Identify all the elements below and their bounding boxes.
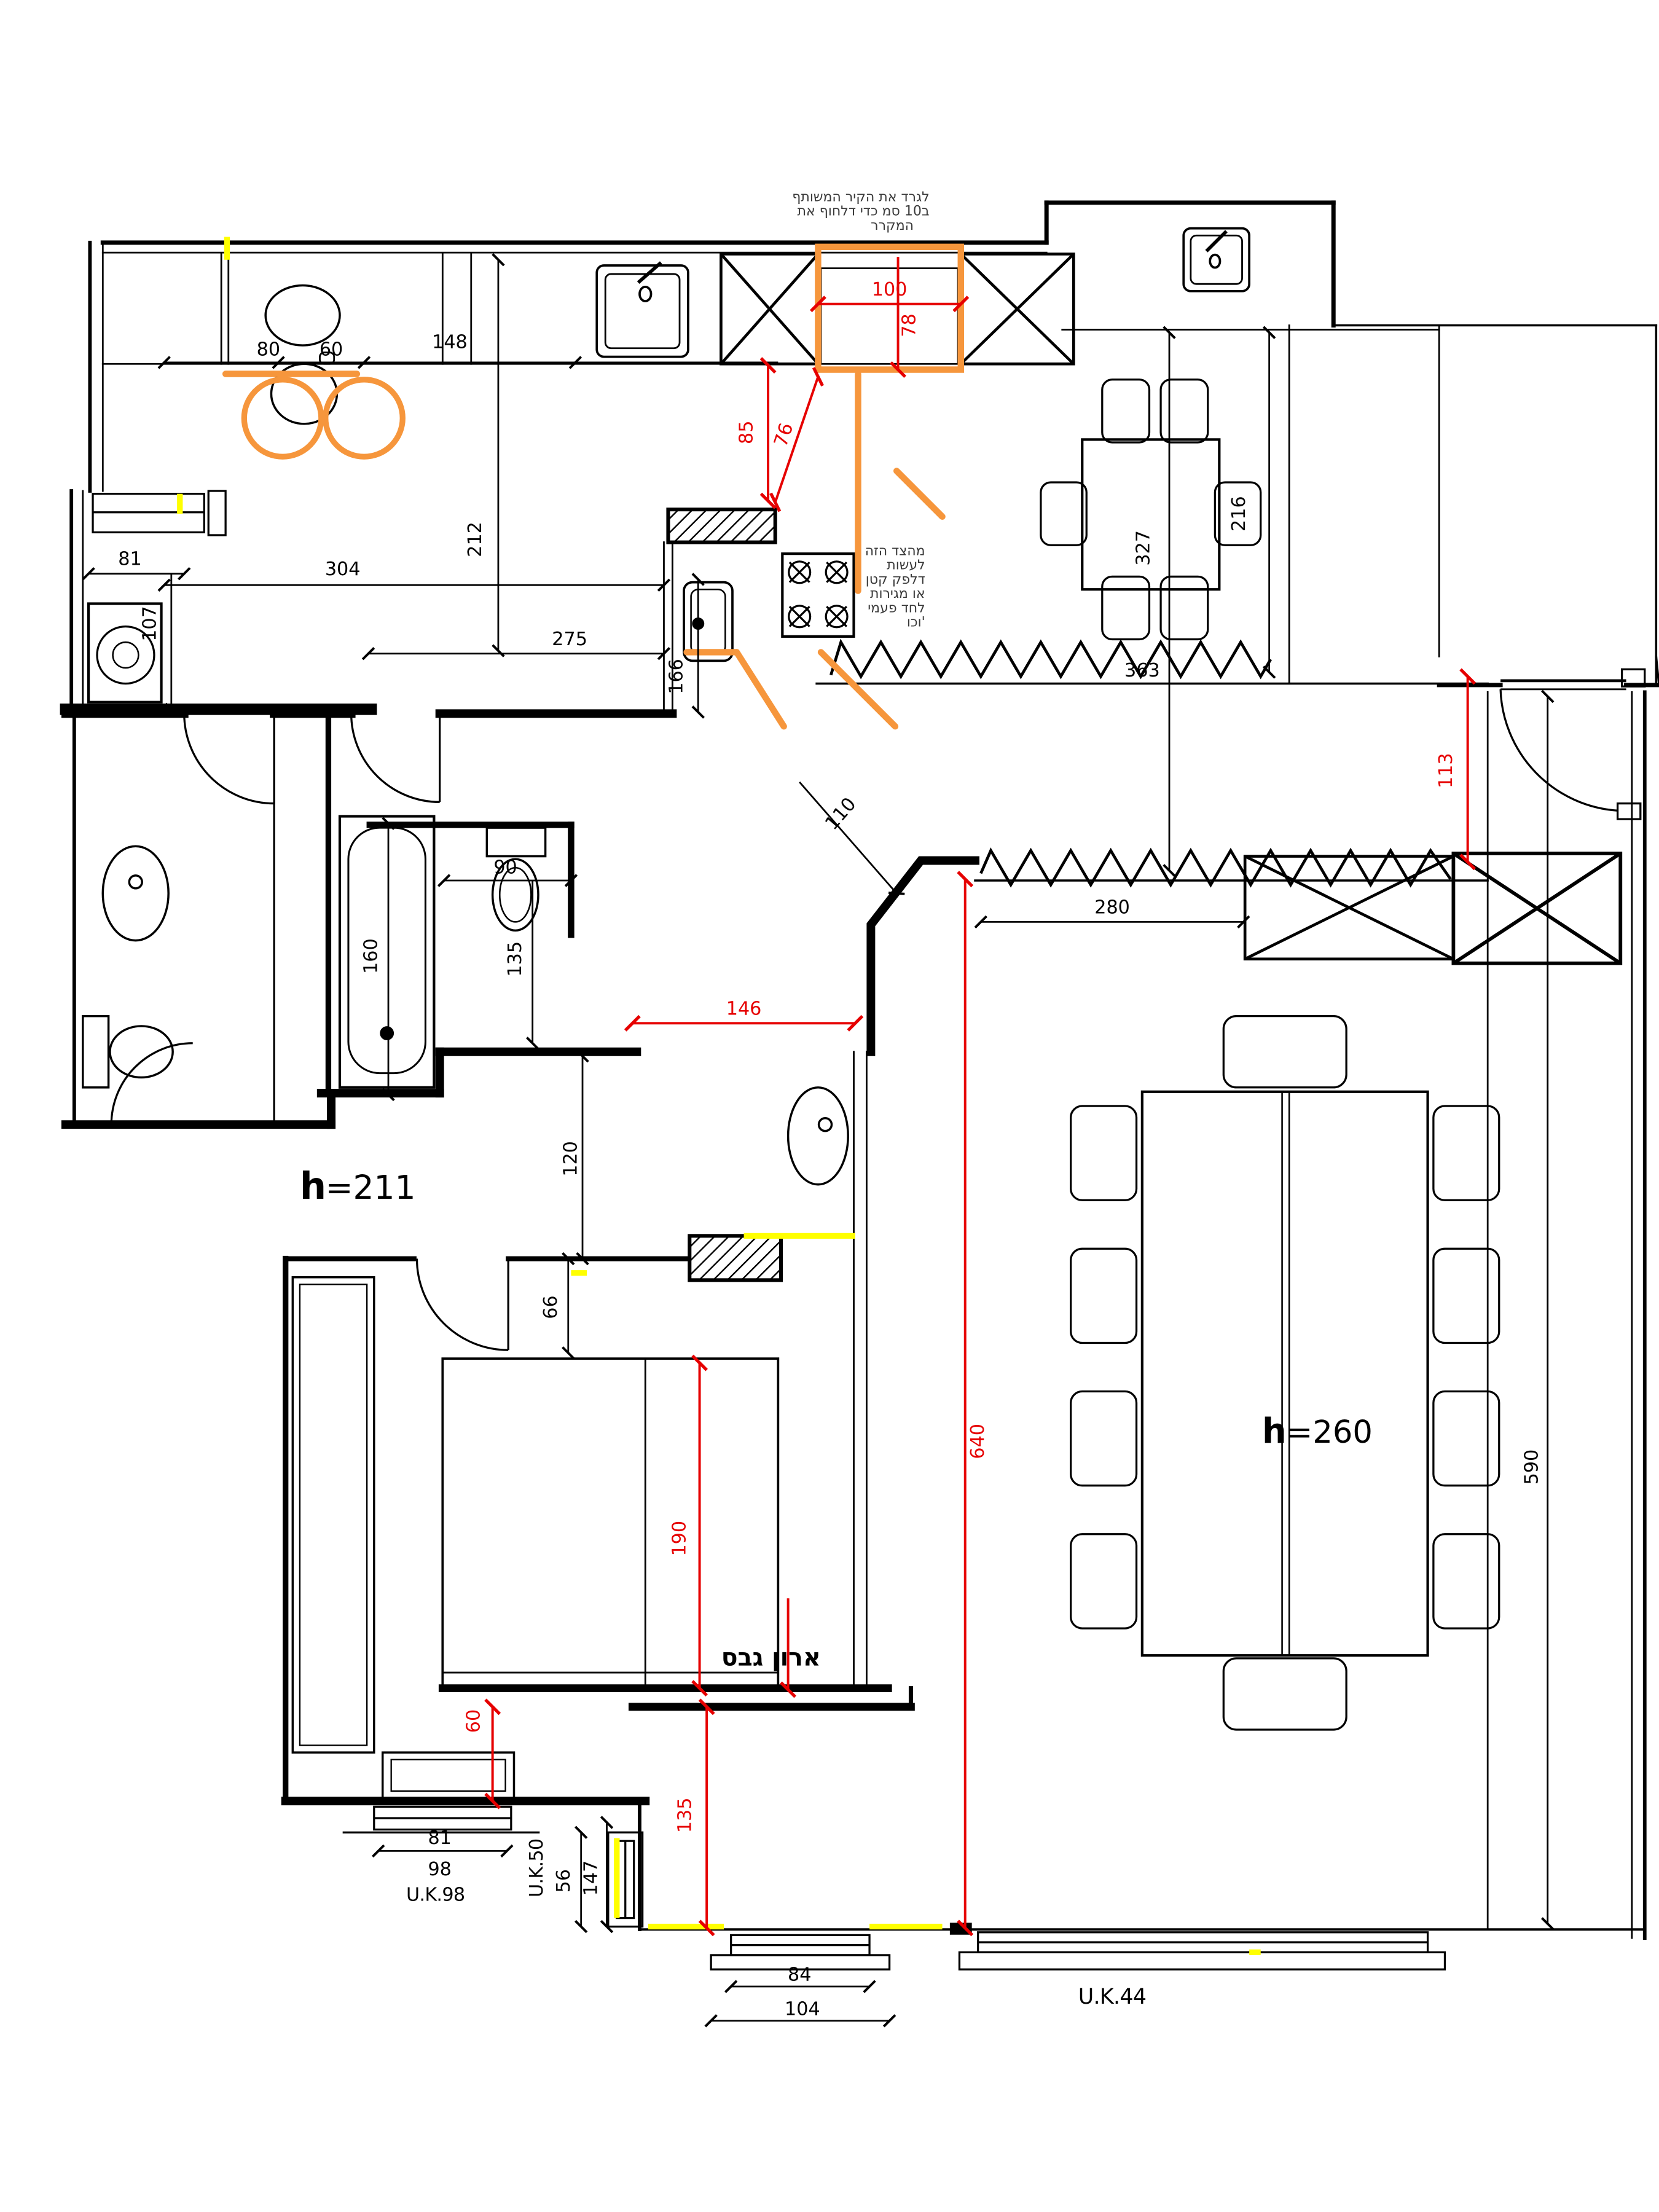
dim-bed-190: 190 bbox=[669, 1521, 690, 1556]
dim-entry-113: 113 bbox=[1435, 753, 1457, 788]
dim-dining-216: 216 bbox=[1228, 496, 1250, 531]
dim-island-166: 166 bbox=[666, 659, 688, 694]
sink-bath-left bbox=[103, 846, 168, 940]
dim-living-280: 280 bbox=[1094, 896, 1130, 918]
counter-note-line1: מהצד הזה bbox=[865, 543, 925, 559]
living-height-h: h bbox=[1262, 1411, 1287, 1451]
counter-note-line6: וכו' bbox=[907, 615, 925, 630]
fridge-note-line2: ב10 סמ כדי דלחוף את bbox=[798, 204, 930, 219]
dim-corridor-120: 120 bbox=[560, 1141, 582, 1177]
dim-kitchen-212: 212 bbox=[465, 522, 486, 557]
orange-circle-1 bbox=[244, 380, 321, 457]
dim-laundry-81: 81 bbox=[118, 549, 141, 570]
stove bbox=[782, 554, 853, 637]
dim-laundry-107: 107 bbox=[139, 606, 160, 641]
dim-win-104: 104 bbox=[785, 1998, 820, 2020]
dimensions-black bbox=[88, 260, 1548, 2021]
living-height-value: =260 bbox=[1287, 1414, 1373, 1451]
dim-counter-60: 60 bbox=[320, 339, 343, 360]
counter-note-line5: לחד פעמי bbox=[868, 600, 925, 616]
label-uk50: U.K.50 bbox=[526, 1839, 547, 1897]
counter-note-line2: לעשות bbox=[887, 558, 925, 573]
bathtub bbox=[340, 817, 434, 1088]
dim-kitchen-275: 275 bbox=[552, 629, 587, 650]
dim-opening-146: 146 bbox=[726, 998, 762, 1019]
door-bath-small bbox=[111, 1043, 192, 1124]
floor-plan: 80 60 148 81 107 304 275 212 166 327 216… bbox=[0, 0, 1659, 2212]
dim-side-56: 56 bbox=[553, 1869, 575, 1892]
dim-break-363: 363 bbox=[1124, 660, 1160, 681]
door-bath-center bbox=[351, 713, 440, 802]
dim-counter-148: 148 bbox=[432, 332, 468, 353]
dim-counter-80: 80 bbox=[257, 339, 280, 360]
cabinet-left-of-fridge bbox=[721, 254, 818, 364]
dim-win-84: 84 bbox=[788, 1964, 811, 1986]
counter-note-line3: דלפק קטן bbox=[866, 572, 925, 587]
sink-hall bbox=[788, 1088, 849, 1185]
shaft-box-a bbox=[1245, 857, 1453, 959]
window-uk50 bbox=[608, 1832, 643, 1926]
dim-diag-110: 110 bbox=[821, 793, 860, 834]
dresser bbox=[383, 1752, 514, 1798]
dim-living-640: 640 bbox=[967, 1424, 989, 1459]
door-bedroom bbox=[417, 1259, 508, 1351]
dim-door-66: 66 bbox=[540, 1295, 562, 1319]
dim-facade-590: 590 bbox=[1521, 1449, 1542, 1485]
dim-window-81: 81 bbox=[428, 1827, 451, 1849]
doors bbox=[111, 669, 1645, 1350]
dim-fridge-78: 78 bbox=[898, 313, 920, 337]
door-bath-left bbox=[184, 713, 274, 803]
hall-height-h: h bbox=[300, 1165, 326, 1208]
toilet-center bbox=[487, 828, 545, 930]
fridge-note-line1: לגרד את הקיר המשותף bbox=[792, 189, 929, 205]
label-uk98: U.K.98 bbox=[406, 1885, 465, 1906]
dim-toilet-90: 90 bbox=[493, 857, 517, 878]
dim-side-147: 147 bbox=[580, 1861, 602, 1896]
window-laundry bbox=[93, 491, 226, 535]
room-labels: h =211 h =260 ארון גבס bbox=[300, 1165, 1373, 1671]
dim-bottom-135: 135 bbox=[675, 1798, 696, 1834]
dining-sink bbox=[1183, 229, 1249, 291]
fridge-proposed bbox=[818, 247, 960, 370]
column-x-boxes bbox=[721, 254, 1620, 963]
counter-note-line4: או מגירות bbox=[870, 586, 925, 602]
bed bbox=[442, 1359, 778, 1688]
dim-fridge-100: 100 bbox=[872, 279, 908, 300]
label-uk44: U.K.44 bbox=[1078, 1985, 1147, 2009]
dining-table-small bbox=[1041, 380, 1261, 640]
dining-table-large bbox=[1071, 1016, 1499, 1730]
shaft-box-b bbox=[1453, 853, 1620, 963]
gypsum-closet-label: ארון גבס bbox=[721, 1643, 821, 1671]
dim-bed-60: 60 bbox=[463, 1709, 485, 1733]
cabinet-right-of-fridge bbox=[961, 254, 1074, 364]
dim-tub-160: 160 bbox=[360, 938, 382, 974]
door-entrance bbox=[1500, 669, 1645, 819]
dim-kitchen-304: 304 bbox=[325, 559, 361, 580]
dim-dining-327: 327 bbox=[1132, 530, 1154, 566]
kitchen-sink bbox=[597, 262, 688, 356]
dim-toilet-135: 135 bbox=[504, 941, 526, 977]
walls bbox=[66, 203, 1659, 1938]
orange-circle-2 bbox=[326, 380, 402, 457]
wardrobe bbox=[292, 1277, 374, 1752]
dim-clear-85: 85 bbox=[736, 421, 758, 444]
dim-window-98: 98 bbox=[428, 1859, 451, 1880]
hall-height-value: =211 bbox=[326, 1168, 416, 1207]
fridge-note-line3: המקרר bbox=[871, 218, 914, 233]
